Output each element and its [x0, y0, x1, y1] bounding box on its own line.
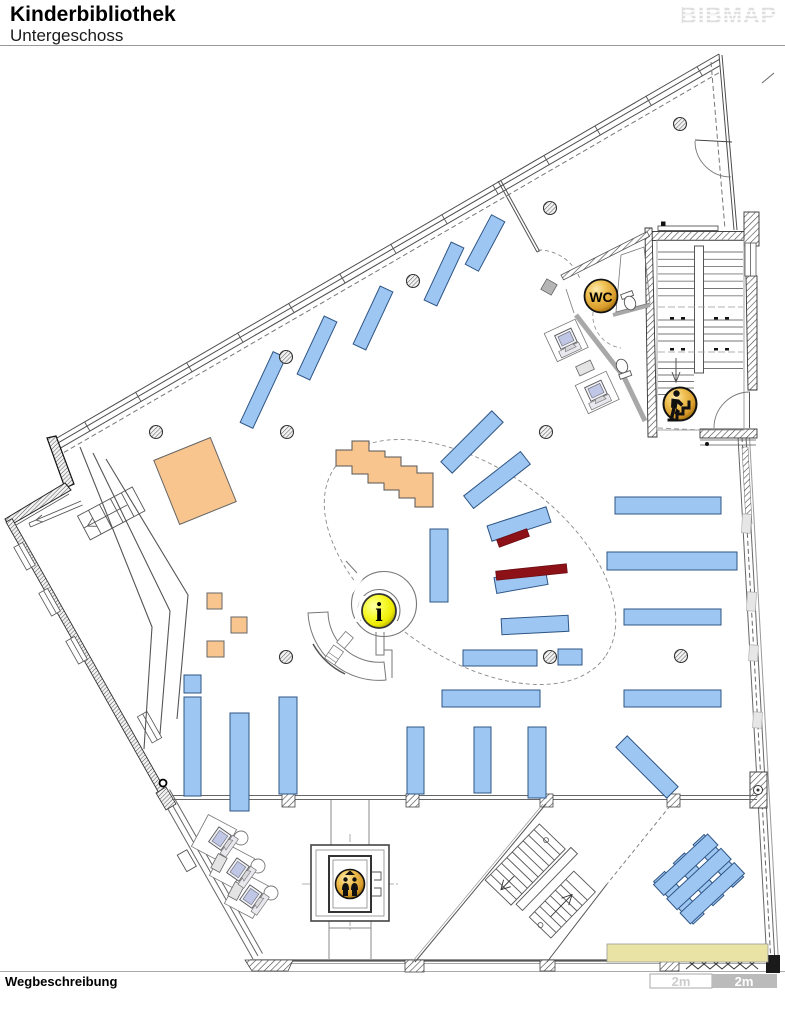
- svg-text:WC: WC: [589, 289, 612, 305]
- svg-text:2m: 2m: [672, 974, 691, 989]
- svg-text:2m: 2m: [735, 974, 754, 989]
- svg-text:i: i: [375, 597, 383, 627]
